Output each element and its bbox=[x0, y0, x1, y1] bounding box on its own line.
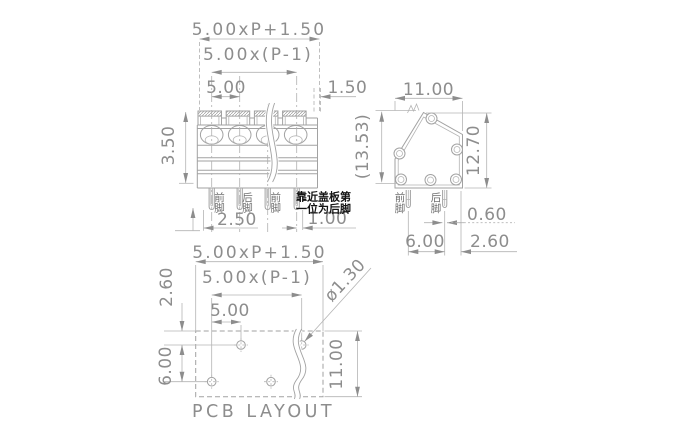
pcb-dim-total-width: 5.00xP+1.50 bbox=[192, 243, 326, 263]
pcb-dim-span: 5.00x(P-1) bbox=[202, 268, 312, 288]
dim-body-height: 12.70 bbox=[464, 125, 484, 176]
dim-overall-height: (13.53) bbox=[353, 114, 373, 179]
side-pin-rear-char2: 脚 bbox=[431, 202, 442, 215]
pcb-dim-hole-dia: ø1.30 bbox=[321, 255, 370, 306]
dim-pin-edge: 2.60 bbox=[470, 232, 510, 252]
terminal-screw-blocks bbox=[198, 111, 318, 125]
wire-openings bbox=[197, 126, 317, 145]
serration-detail bbox=[408, 104, 420, 113]
pcb-dim-row-offset: 2.60 bbox=[157, 267, 177, 307]
pin1-label-char2: 脚 bbox=[214, 202, 225, 215]
pcb-dim-row-spacing: 6.00 bbox=[156, 346, 176, 386]
dim-edge-offset: 1.50 bbox=[328, 78, 368, 98]
dim-pin-width: 0.60 bbox=[467, 205, 507, 225]
pcb-layout: 5.00xP+1.50 5.00x(P-1) 5.00 2.60 6.00 11… bbox=[156, 243, 371, 422]
pcb-dimensions: 5.00xP+1.50 5.00x(P-1) 5.00 2.60 6.00 11… bbox=[156, 243, 371, 397]
dim-pitch: 5.00 bbox=[206, 78, 246, 98]
dim-span: 5.00x(P-1) bbox=[203, 45, 313, 65]
technical-drawing: 5.00xP+1.50 5.00x(P-1) 5.00 1.50 3.50 2.… bbox=[0, 0, 680, 440]
pcb-dim-board-height: 11.00 bbox=[327, 338, 347, 389]
side-pin-front-char2: 脚 bbox=[395, 202, 406, 215]
pcb-layout-caption: PCB LAYOUT bbox=[192, 402, 335, 422]
technical-drawing-page: 5.00xP+1.50 5.00x(P-1) 5.00 1.50 3.50 2.… bbox=[0, 0, 680, 440]
dim-side-width: 11.00 bbox=[403, 80, 454, 100]
pcb-dim-pitch: 5.00 bbox=[210, 301, 250, 321]
side-view-pin-labels: 前 脚 后 脚 bbox=[395, 191, 442, 215]
annotation-line-2: 一位为后脚 bbox=[296, 202, 351, 216]
side-profile bbox=[394, 104, 463, 188]
pin2-label-char2: 脚 bbox=[242, 202, 253, 215]
front-view: 5.00xP+1.50 5.00x(P-1) 5.00 1.50 3.50 2.… bbox=[159, 20, 367, 232]
annotation-line-1: 靠近盖板第 bbox=[296, 190, 351, 204]
pin3-label-char2: 脚 bbox=[271, 202, 282, 215]
side-view: 前 脚 后 脚 11.00 (13.53) 12.70 0.60 6.00 bbox=[353, 80, 517, 256]
dim-pin-spacing: 6.00 bbox=[405, 232, 445, 252]
dim-total-width: 5.00xP+1.50 bbox=[192, 20, 326, 40]
pcb-break-line bbox=[293, 329, 306, 399]
dim-height: 3.50 bbox=[159, 126, 179, 166]
side-view-dimensions: 11.00 (13.53) 12.70 0.60 6.00 2.60 bbox=[353, 80, 517, 256]
